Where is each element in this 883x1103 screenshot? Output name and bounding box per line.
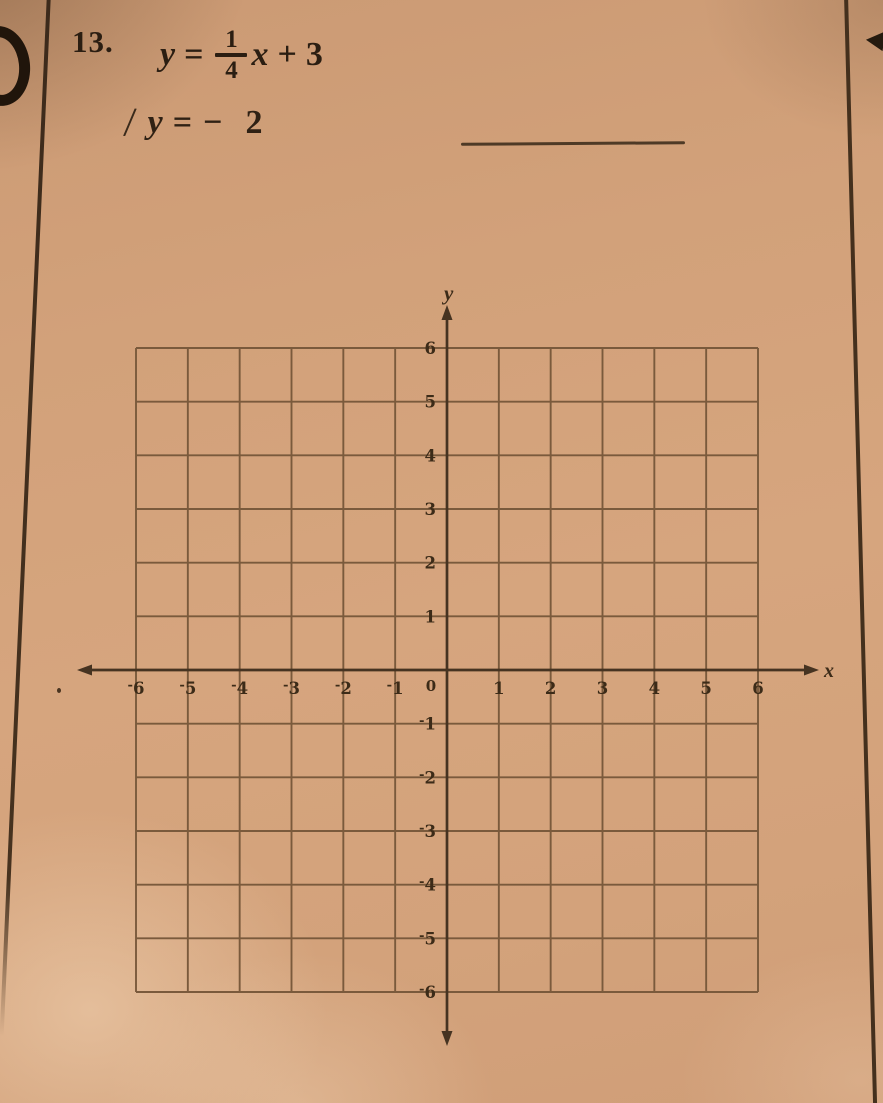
y-tick-label: -2 [419, 767, 436, 787]
x-tick-label: -6 [128, 678, 145, 698]
y-axis-label: y [441, 281, 454, 305]
y-tick-label: -6 [419, 982, 436, 1002]
equals-sign: = [184, 36, 203, 74]
y-tick-label: 1 [425, 607, 436, 626]
stray-slash-mark: / [122, 99, 137, 148]
x-tick-label: -3 [283, 678, 300, 698]
y-tick-label: -1 [419, 714, 436, 734]
equation-2-lhs: y [148, 104, 163, 142]
top-right-corner-mark [865, 29, 883, 51]
x-tick-label: 4 [649, 679, 660, 698]
y-tick-label: 6 [425, 339, 436, 358]
equals-sign-2: = [173, 104, 192, 142]
x-tick-label: 6 [752, 679, 763, 698]
y-tick-label: -3 [419, 821, 436, 841]
x-axis-right-arrow [804, 665, 819, 676]
fraction-denominator: 4 [225, 59, 238, 83]
x-axis-left-arrow [77, 665, 92, 676]
equation-1-variable: x [251, 36, 268, 74]
equation-1: y = 1 4 x + 3 [160, 10, 323, 100]
x-tick-label: -1 [387, 678, 404, 698]
x-tick-label: 2 [545, 679, 556, 698]
y-tick-label: 4 [425, 446, 436, 465]
x-tick-label: 1 [493, 679, 504, 698]
plus-sign: + [277, 36, 296, 74]
hole-punch-mark [0, 23, 34, 109]
x-tick-label: 5 [700, 679, 711, 698]
left-margin-line [0, 0, 51, 1036]
right-page-edge-line [844, 0, 877, 1103]
x-tick-label: 3 [597, 679, 608, 698]
paper-speck [57, 688, 61, 693]
x-tick-label: 0 [426, 677, 436, 695]
x-tick-label: -4 [231, 678, 248, 698]
y-tick-label: -5 [419, 928, 436, 948]
equation-2-constant: 2 [246, 104, 263, 142]
equation-1-lhs: y [160, 36, 175, 74]
x-axis-label: x [823, 660, 834, 682]
problem-number: 13. [72, 24, 114, 60]
equation-2-row: / y = − 2 [124, 93, 263, 153]
y-axis-down-arrow [442, 1031, 453, 1046]
fraction-numerator: 1 [225, 28, 238, 52]
worksheet-page: 13. y = 1 4 x + 3 / y = − 2 -6-5-4-3-2-1… [0, 0, 883, 1103]
y-tick-label: 3 [425, 500, 436, 519]
y-tick-label: -4 [419, 875, 436, 895]
answer-blank-line [461, 141, 685, 146]
fraction-one-fourth: 1 4 [215, 28, 247, 83]
y-axis-up-arrow [442, 305, 453, 320]
y-tick-label: 5 [425, 393, 436, 412]
equation-1-constant: 3 [306, 36, 323, 74]
x-tick-label: -5 [179, 678, 196, 698]
y-tick-label: 2 [425, 554, 436, 573]
x-tick-label: -2 [335, 678, 352, 698]
minus-sign: − [203, 104, 222, 142]
coordinate-grid: -6-5-4-3-2-10123456654321-1-2-3-4-5-6yx [0, 0, 883, 1103]
